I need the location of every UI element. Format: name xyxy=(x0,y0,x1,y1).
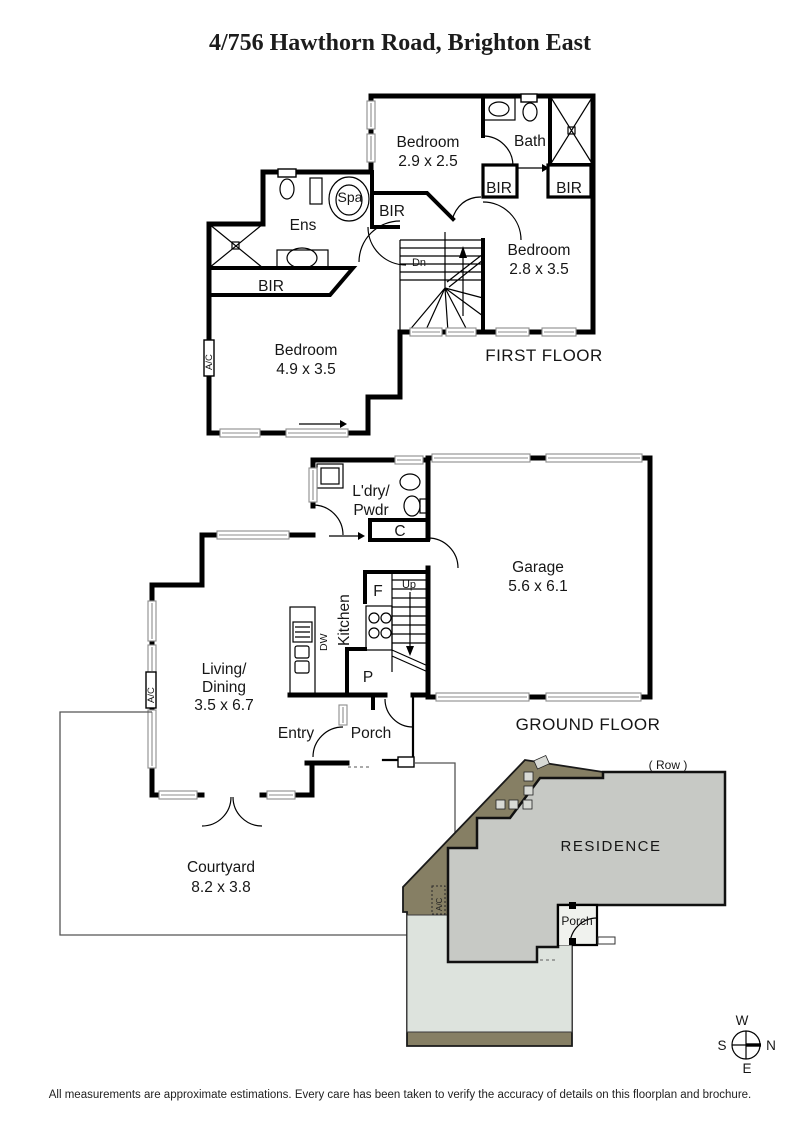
ens-label: Ens xyxy=(290,217,317,234)
bath-toilet-icon xyxy=(523,103,537,121)
ground-floor-windows xyxy=(148,454,642,799)
stairs-down-arrowhead xyxy=(406,646,414,656)
powder-toilet-icon xyxy=(404,496,420,516)
residence-label: RESIDENCE xyxy=(560,838,661,855)
spa-label: Spa xyxy=(338,189,363,205)
kitchen-label: Kitchen xyxy=(336,594,353,646)
stairs-up-label: Up xyxy=(402,579,416,591)
first-floor-label: FIRST FLOOR xyxy=(485,346,603,365)
ground-floor-outer-walls xyxy=(152,458,650,795)
shower-icon xyxy=(550,96,593,165)
compass-south-label: S xyxy=(717,1038,726,1053)
ac-label-ground-floor: A/C xyxy=(146,687,157,703)
entry-arrowhead xyxy=(358,532,365,540)
dishwasher-label: DW xyxy=(318,633,330,651)
sink-bowl-1 xyxy=(295,646,309,658)
stairs-dn-label: Dn xyxy=(412,257,426,269)
floorplan-canvas: Bedroom 2.9 x 2.5 Bath BIR BIR BIR BIR E… xyxy=(0,0,800,1132)
row-label: ( Row ) xyxy=(649,758,688,772)
bath-label: Bath xyxy=(514,133,546,150)
courtyard-outline xyxy=(60,712,455,935)
courtyard-dims: 8.2 x 3.8 xyxy=(191,879,250,896)
compass-east-label: E xyxy=(742,1061,751,1076)
site-porch-step xyxy=(598,937,615,944)
compass-west-label: W xyxy=(736,1013,749,1028)
ens-shower-icon xyxy=(209,224,263,268)
ens-basin-icon xyxy=(287,248,317,268)
bath-cistern-icon xyxy=(521,94,537,102)
site-ac-label: A/C xyxy=(435,897,444,911)
ens-vanity-icon xyxy=(277,250,328,268)
ground-floor-label: GROUND FLOOR xyxy=(516,715,661,734)
site-plan: A/C ( Row ) RESIDENCE Porch xyxy=(398,755,725,1046)
dishwasher-grill xyxy=(295,627,310,637)
disclaimer-text: All measurements are approximate estimat… xyxy=(0,1089,800,1101)
courtyard-label: Courtyard xyxy=(187,859,255,876)
porch-label: Porch xyxy=(351,725,392,742)
powder-basin-icon xyxy=(400,474,420,490)
bir-right-label: BIR xyxy=(556,180,582,197)
living-dims: 3.5 x 6.7 xyxy=(194,697,253,714)
ens-toilet-icon xyxy=(280,179,294,199)
ens-cistern-icon xyxy=(278,169,296,177)
sink-bowl-2 xyxy=(295,661,309,673)
ground-floor-interior-walls xyxy=(347,520,428,708)
entry-label: Entry xyxy=(278,725,314,742)
kitchen-bench xyxy=(290,607,315,695)
first-floor-plan: Bedroom 2.9 x 2.5 Bath BIR BIR BIR BIR E… xyxy=(204,94,603,437)
bedroom3-dims: 4.9 x 3.5 xyxy=(276,361,335,378)
window-arrowhead xyxy=(340,420,347,428)
compass: W S N E xyxy=(717,1013,775,1076)
bedroom3-label: Bedroom xyxy=(275,342,338,359)
bir-hall-label: BIR xyxy=(379,203,405,220)
bedroom1-dims: 2.9 x 2.5 xyxy=(398,153,457,170)
bir-ens-label: BIR xyxy=(258,278,284,295)
laundry-trough-inner xyxy=(321,468,339,484)
bedroom2-label: Bedroom xyxy=(508,242,571,259)
site-gate-box xyxy=(398,757,414,767)
laundry-label-1: L'dry/ xyxy=(352,483,390,500)
pantry-label: P xyxy=(363,669,373,686)
cupboard-label: C xyxy=(394,523,405,540)
bedroom2-dims: 2.8 x 3.5 xyxy=(509,261,568,278)
ac-label-first-floor: A/C xyxy=(204,354,215,370)
site-porch-label: Porch xyxy=(561,914,592,928)
site-porch-stub-top xyxy=(569,902,576,909)
laundry-label-2: Pwdr xyxy=(353,502,388,519)
garage-dims: 5.6 x 6.1 xyxy=(508,578,567,595)
ens-shelf-icon xyxy=(310,178,322,204)
bir-left-label: BIR xyxy=(486,180,512,197)
bedroom1-label: Bedroom xyxy=(397,134,460,151)
living-label-2: Dining xyxy=(202,679,246,696)
stairs-first-floor xyxy=(400,232,483,332)
fridge-label: F xyxy=(373,583,382,600)
garage-label: Garage xyxy=(512,559,564,576)
living-label-1: Living/ xyxy=(202,661,247,678)
bath-basin-icon xyxy=(489,102,509,116)
compass-north-label: N xyxy=(766,1038,776,1053)
